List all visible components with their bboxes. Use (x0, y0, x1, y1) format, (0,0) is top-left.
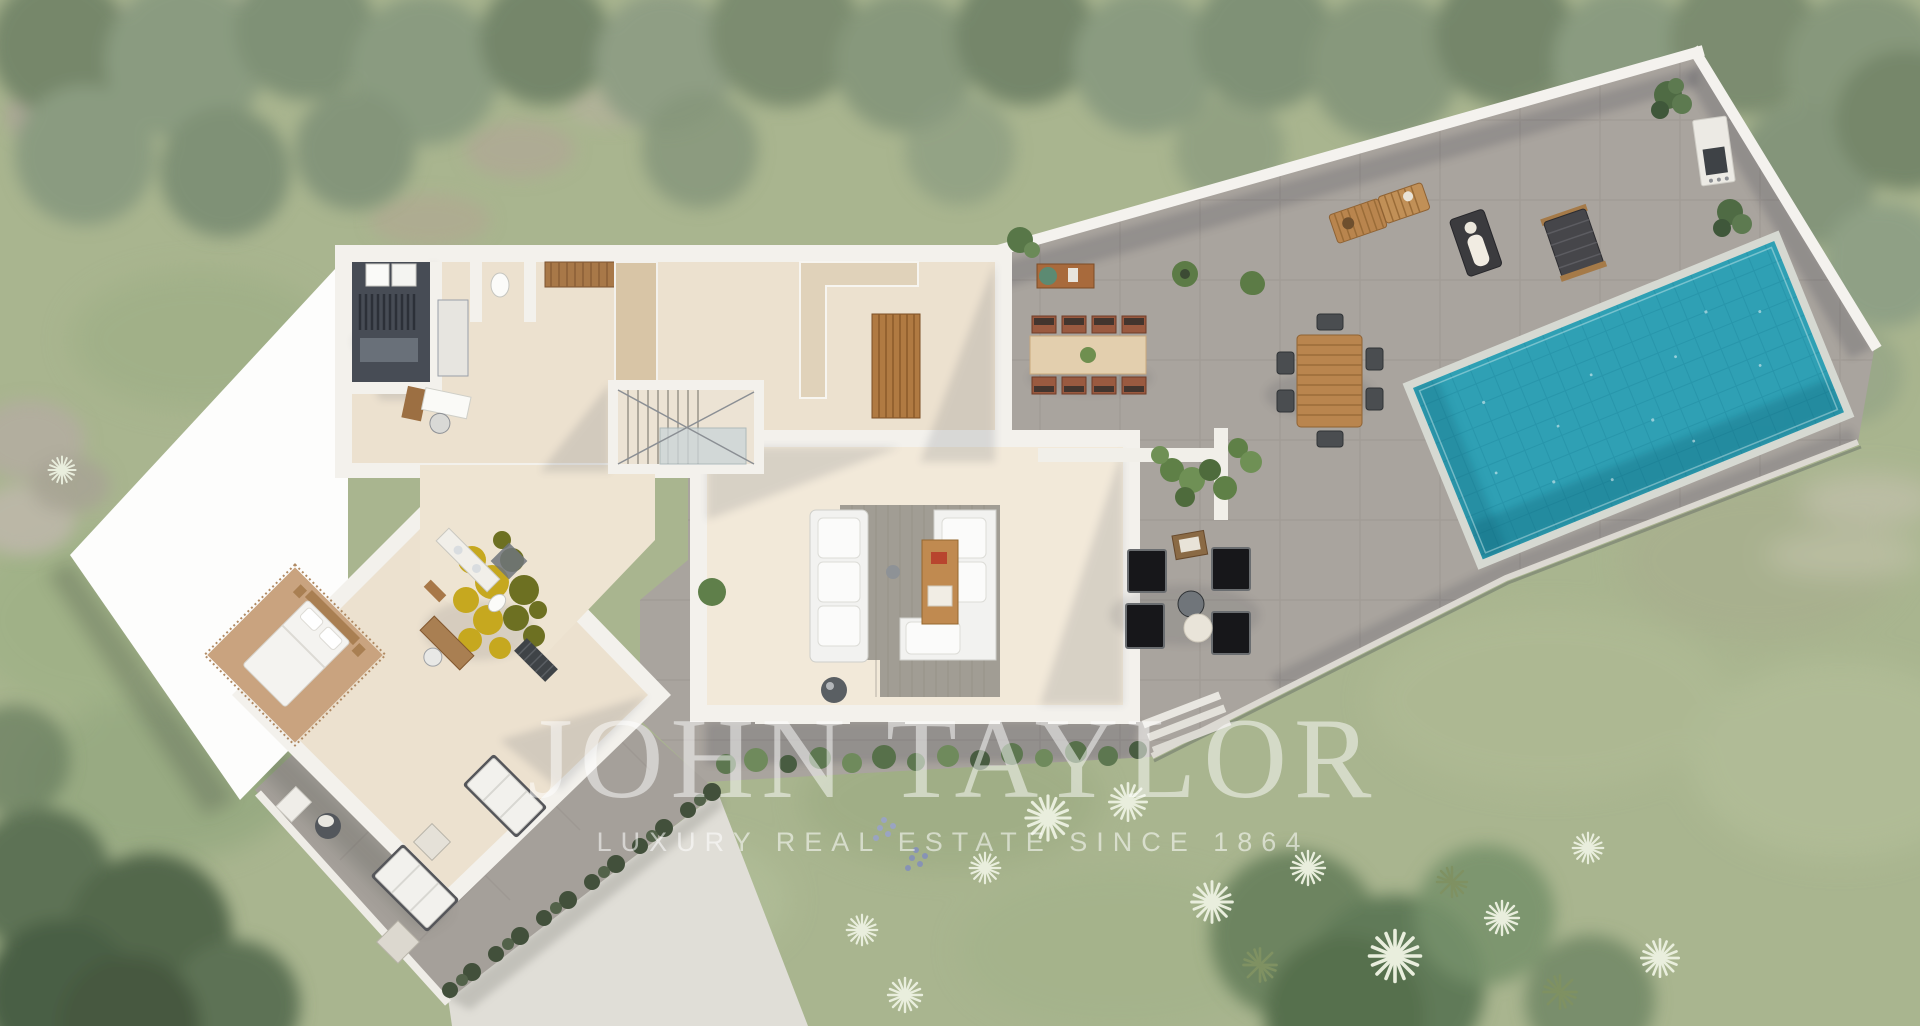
sphere-planter (315, 813, 341, 839)
utility-mat (360, 338, 418, 362)
watermark: JOHN TAYLOR LUXURY REAL ESTATE SINCE 186… (528, 695, 1379, 857)
staircase (608, 380, 764, 474)
console-plant (1039, 267, 1057, 285)
outdoor-table (1297, 335, 1362, 427)
toilet (491, 273, 509, 297)
watermark-brand: JOHN TAYLOR (528, 695, 1379, 823)
dryer (392, 264, 416, 286)
black-armchair (1128, 550, 1166, 592)
storage-cabinet (438, 300, 468, 376)
coffee-table (922, 540, 958, 624)
sofa-left (810, 510, 868, 662)
terrace-plant (1024, 242, 1040, 258)
black-armchair (1126, 604, 1164, 648)
grill (1703, 147, 1728, 176)
table-plant (1080, 347, 1096, 363)
console-item (1068, 268, 1078, 282)
washer (366, 264, 389, 286)
black-armchair (1212, 548, 1250, 590)
round-side-table (1178, 591, 1204, 617)
planter-wall (1038, 448, 1228, 462)
wood-bench (1172, 530, 1208, 559)
stair-glass (660, 428, 746, 464)
table-decor (931, 552, 947, 564)
scene-canvas: JOHN TAYLOR LUXURY REAL ESTATE SINCE 186… (0, 0, 1920, 1026)
indoor-plant (698, 578, 726, 606)
fire-bowl (886, 565, 900, 579)
watermark-tagline: LUXURY REAL ESTATE SINCE 1864 (597, 827, 1310, 857)
black-armchair (1212, 612, 1250, 654)
aerial-render: JOHN TAYLOR LUXURY REAL ESTATE SINCE 186… (0, 0, 1920, 1026)
terrace-potted-plant (1240, 271, 1264, 295)
hall-sideboard (545, 262, 617, 287)
round-side-table (1184, 614, 1212, 642)
